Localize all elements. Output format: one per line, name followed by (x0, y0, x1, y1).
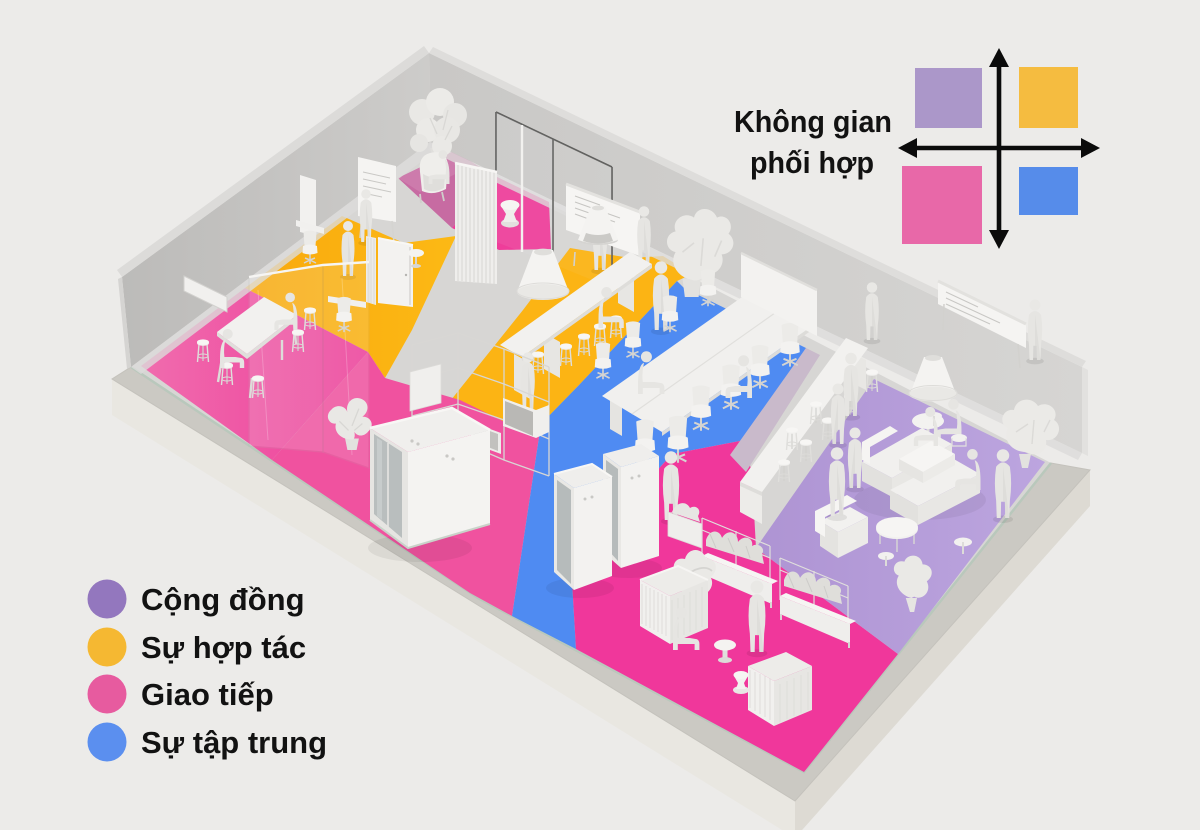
svg-text:Cộng đồng: Cộng đồng (141, 582, 305, 617)
svg-text:Sự tập trung: Sự tập trung (141, 725, 327, 760)
svg-text:phối hợp: phối hợp (750, 145, 874, 180)
svg-text:Giao tiếp: Giao tiếp (141, 677, 274, 712)
svg-text:Sự hợp tác: Sự hợp tác (141, 630, 306, 665)
svg-text:Không gian: Không gian (734, 104, 892, 139)
